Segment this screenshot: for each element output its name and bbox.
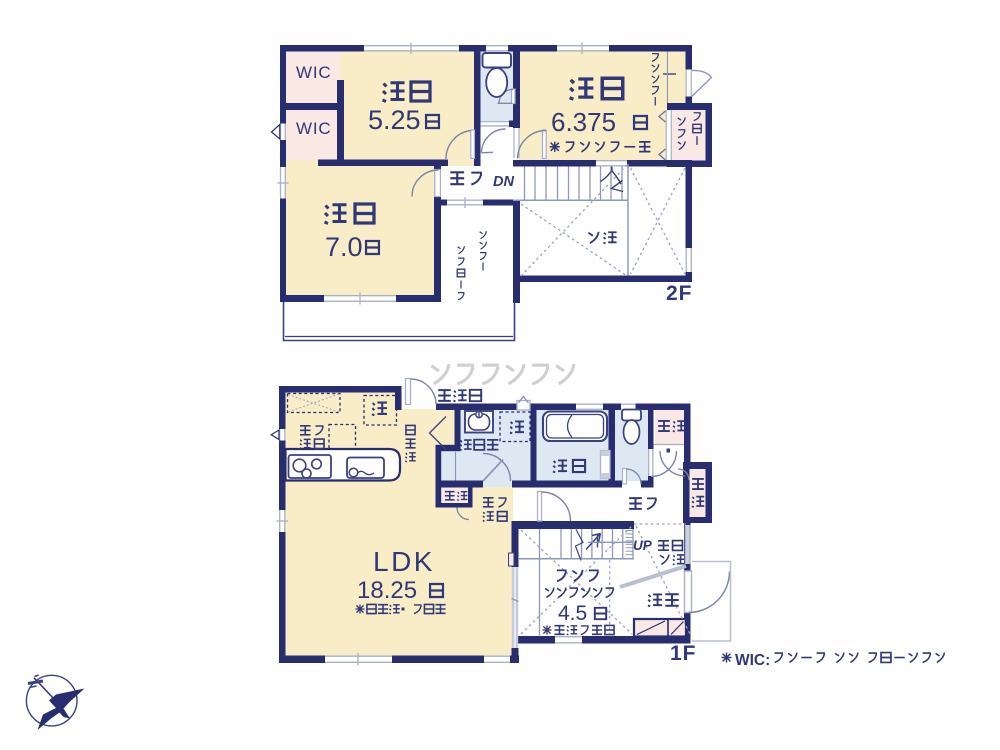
svg-text:WIC: WIC: [296, 119, 331, 138]
svg-text:2F: 2F: [666, 282, 693, 305]
svg-text:UP: UP: [633, 538, 653, 553]
svg-text:7.0: 7.0: [325, 232, 363, 262]
svg-text:18.25: 18.25: [357, 577, 417, 604]
svg-text:5.25: 5.25: [368, 105, 421, 135]
svg-text:6.375: 6.375: [551, 107, 616, 137]
svg-text:DN: DN: [493, 174, 514, 190]
svg-text:4.5: 4.5: [558, 602, 587, 625]
svg-text:WIC: WIC: [296, 63, 331, 82]
svg-text:LDK: LDK: [373, 546, 435, 577]
svg-text:1F: 1F: [670, 642, 697, 665]
svg-text:WIC:: WIC:: [735, 652, 770, 669]
